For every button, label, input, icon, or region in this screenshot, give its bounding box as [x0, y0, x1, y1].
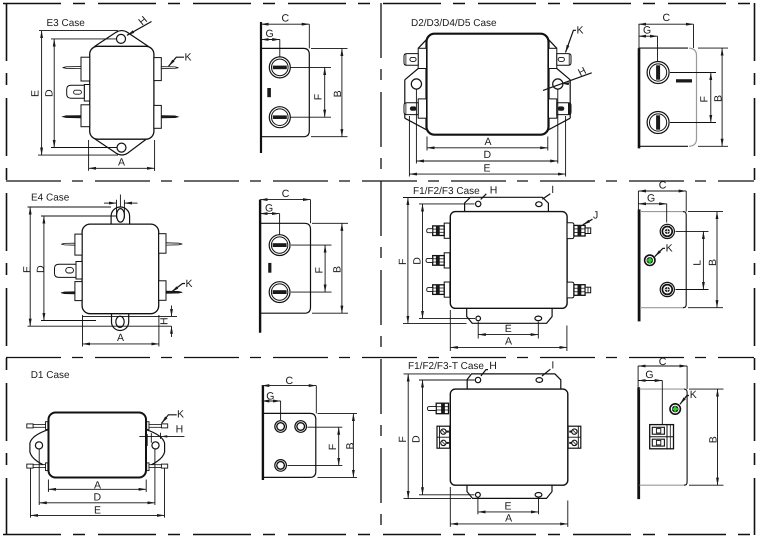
- svg-text:K: K: [577, 25, 584, 37]
- svg-text:I: I: [551, 360, 554, 372]
- svg-text:B: B: [332, 90, 344, 97]
- svg-text:F: F: [313, 267, 325, 273]
- svg-text:E: E: [21, 266, 33, 273]
- svg-text:D: D: [94, 491, 102, 503]
- svg-text:G: G: [266, 390, 274, 402]
- svg-text:G: G: [643, 25, 651, 37]
- svg-text:F: F: [312, 94, 324, 100]
- svg-text:D: D: [410, 435, 422, 443]
- svg-text:H: H: [576, 65, 588, 79]
- svg-text:E: E: [505, 323, 512, 335]
- svg-text:F1/F2/F3 Case: F1/F2/F3 Case: [413, 186, 480, 197]
- svg-text:E: E: [94, 504, 101, 516]
- svg-text:C: C: [282, 188, 290, 200]
- svg-text:B: B: [707, 436, 719, 443]
- svg-text:B: B: [332, 266, 344, 273]
- svg-text:A: A: [485, 136, 492, 148]
- svg-text:A: A: [505, 336, 512, 348]
- svg-text:H: H: [490, 185, 498, 197]
- svg-text:B: B: [707, 259, 719, 266]
- svg-text:J: J: [593, 210, 598, 222]
- svg-text:B: B: [712, 95, 724, 102]
- svg-text:I: I: [551, 184, 554, 196]
- svg-text:G: G: [647, 193, 655, 205]
- svg-text:K: K: [185, 51, 192, 63]
- svg-text:A: A: [505, 512, 512, 524]
- svg-text:F: F: [327, 444, 339, 450]
- svg-text:H: H: [176, 423, 184, 435]
- svg-text:F: F: [397, 436, 409, 442]
- svg-text:G: G: [265, 202, 273, 214]
- svg-text:H: H: [159, 317, 171, 325]
- svg-text:E: E: [505, 501, 512, 513]
- svg-text:E4 Case: E4 Case: [31, 192, 70, 203]
- svg-text:K: K: [177, 408, 184, 420]
- svg-text:D1 Case: D1 Case: [31, 370, 70, 381]
- svg-text:D: D: [35, 265, 47, 273]
- svg-text:F: F: [397, 259, 409, 265]
- svg-text:G: G: [266, 28, 274, 40]
- svg-text:D2/D3/D4/D5 Case: D2/D3/D4/D5 Case: [411, 18, 497, 29]
- svg-text:D: D: [411, 257, 423, 265]
- svg-text:F1/F2/F3-T Case: F1/F2/F3-T Case: [408, 361, 484, 372]
- svg-text:C: C: [659, 356, 667, 368]
- svg-text:L: L: [692, 260, 704, 266]
- svg-text:C: C: [659, 180, 667, 192]
- svg-text:A: A: [118, 157, 125, 169]
- svg-text:F: F: [699, 96, 711, 102]
- svg-text:C: C: [282, 13, 290, 25]
- svg-text:D: D: [484, 149, 492, 161]
- svg-text:D: D: [43, 89, 55, 97]
- svg-text:E3 Case: E3 Case: [47, 18, 86, 29]
- svg-text:C: C: [286, 375, 294, 387]
- svg-text:E: E: [484, 162, 491, 174]
- svg-text:E: E: [30, 90, 42, 97]
- svg-text:K: K: [186, 278, 193, 290]
- svg-text:K: K: [666, 242, 673, 254]
- svg-text:C: C: [663, 12, 671, 24]
- svg-text:G: G: [645, 369, 653, 381]
- svg-text:H: H: [489, 360, 497, 372]
- svg-text:A: A: [117, 332, 124, 344]
- svg-text:B: B: [345, 442, 357, 449]
- svg-text:K: K: [690, 389, 697, 401]
- svg-text:A: A: [94, 479, 101, 491]
